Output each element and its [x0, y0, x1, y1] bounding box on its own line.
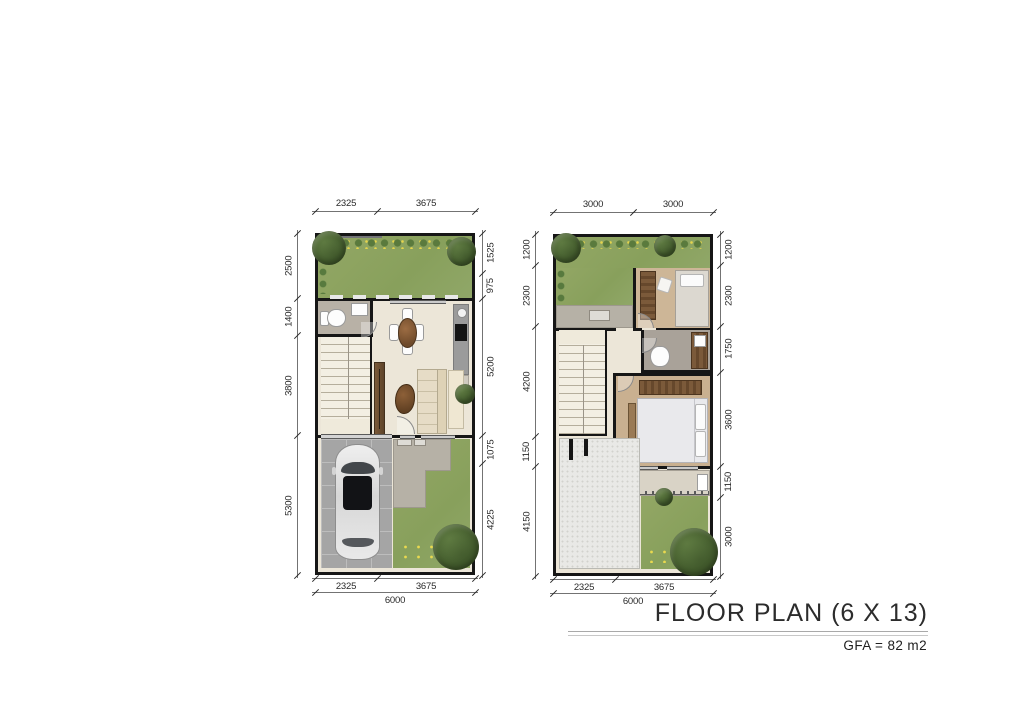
dimension-segment: 2325 [315, 576, 377, 591]
pillow [695, 404, 706, 430]
upper-dims-right: 120023001750360011503000 [716, 234, 732, 576]
step-pad [397, 439, 411, 446]
dimension-label: 975 [486, 278, 496, 293]
dimension-segment: 1750 [716, 326, 732, 372]
dimension-label: 2300 [724, 286, 734, 306]
dimension-label: 1750 [724, 339, 734, 359]
floor-plan-canvas: 23253675 2500140038005300 15259755200107… [0, 0, 1024, 723]
coffee-table [395, 384, 415, 414]
dimension-segment: 4200 [524, 326, 540, 437]
dimension-tick [479, 229, 486, 236]
dimension-label: 3000 [663, 200, 683, 210]
tv-screen-line [379, 369, 380, 429]
stair-rail [583, 345, 584, 434]
garden-hedge [326, 238, 465, 249]
kitchen-sink [457, 308, 467, 318]
dimension-segment: 2325 [315, 199, 377, 214]
dimension-segment: 5200 [478, 299, 494, 436]
pillow [695, 431, 706, 457]
dimension-segment: 1075 [478, 436, 494, 464]
dimension-label: 3675 [416, 199, 436, 209]
dimension-tick [311, 208, 318, 215]
dimension-label: 1525 [486, 243, 496, 263]
stove [455, 324, 466, 340]
tree [551, 233, 581, 263]
toilet [327, 309, 346, 327]
dimension-segment: 3675 [377, 576, 475, 591]
gfa-label: GFA = 82 m2 [568, 638, 928, 653]
car [335, 444, 380, 560]
dimension-label: 3000 [583, 200, 603, 210]
hall-opening [616, 328, 633, 331]
rear-window [390, 300, 445, 304]
wall-stub [584, 439, 588, 456]
tree [447, 237, 476, 266]
dimension-segment: 4150 [524, 467, 540, 576]
cushion [656, 276, 673, 293]
ground-dims-left: 2500140038005300 [286, 233, 302, 575]
stair-landing [321, 419, 370, 435]
dimension-label: 2500 [284, 256, 294, 276]
ground-floor-building [315, 233, 475, 575]
lower-roof-void [559, 438, 641, 569]
dimension-segment: 3800 [286, 336, 302, 436]
car-mirror [332, 467, 336, 475]
dimension-label: 2300 [522, 286, 532, 306]
dimension-label: 1200 [522, 240, 532, 260]
dimension-label: 1150 [724, 472, 734, 492]
patio-door-arc [397, 416, 415, 434]
upper-dims-top: 30003000 [553, 200, 713, 215]
step-pad [414, 439, 426, 446]
shrub [455, 384, 475, 404]
tree [433, 524, 479, 570]
dimension-tick [717, 230, 724, 237]
roof-garden-hedge [561, 239, 706, 249]
dimension-segment: 3000 [553, 200, 633, 215]
dimension-label: 6000 [385, 596, 405, 606]
dimension-label: 5300 [284, 495, 294, 515]
patio-paving-walk [393, 470, 426, 509]
dimension-segment: 1525 [478, 233, 494, 273]
car-sunroof [343, 476, 372, 510]
upper-dims-left: 12002300420011504150 [524, 234, 540, 576]
bathroom-2 [641, 330, 710, 373]
dimension-label: 1200 [724, 240, 734, 260]
dimension-segment: 2500 [286, 233, 302, 299]
dimension-segment: 5300 [286, 436, 302, 575]
wall-stub [569, 439, 573, 460]
dining-table [398, 318, 417, 348]
dimension-label: 4225 [486, 509, 496, 529]
dimension-label: 3600 [724, 409, 734, 429]
single-bed [675, 270, 708, 327]
tree [670, 528, 718, 576]
dimension-segment: 2300 [716, 266, 732, 327]
dimension-tick [532, 230, 539, 237]
dimension-tick [311, 575, 318, 582]
dimension-segment: 3000 [716, 497, 732, 576]
dimension-segment: 1400 [286, 299, 302, 336]
car-rear-window [342, 538, 374, 547]
dimension-tick [311, 589, 318, 596]
dimension-segment: 2300 [524, 266, 540, 327]
wardrobe [639, 380, 701, 396]
toilet [650, 346, 669, 367]
kitchen-counter [453, 304, 469, 375]
dimension-tick [549, 590, 556, 597]
dimension-label: 1075 [486, 440, 496, 460]
dimension-tick [549, 209, 556, 216]
car-mirror [379, 467, 383, 475]
double-bed [637, 398, 708, 463]
dimension-segment: 1150 [716, 467, 732, 497]
patio-paving [393, 439, 452, 471]
dimension-segment: 4225 [478, 464, 494, 575]
tv-console [374, 362, 385, 436]
dimension-label: 1150 [522, 442, 532, 462]
bathroom-vanity [351, 303, 368, 316]
dimension-label: 1400 [284, 307, 294, 327]
dimension-label: 4150 [522, 511, 532, 531]
title-block: FLOOR PLAN (6 X 13) GFA = 82 m2 [568, 599, 928, 653]
ground-dims-top: 23253675 [315, 199, 475, 214]
ground-dims-bottom-total: 6000 [315, 590, 475, 605]
roof-walkway [556, 305, 633, 328]
planter [697, 474, 708, 491]
staircase [321, 337, 372, 434]
sheet-title: FLOOR PLAN (6 X 13) [568, 599, 928, 628]
deck-steps [330, 295, 459, 299]
bathroom-door-arc [361, 322, 377, 338]
dimension-label: 3800 [284, 375, 294, 395]
dimension-segment: 6000 [315, 590, 475, 605]
tree [312, 231, 346, 265]
staircase-upper [559, 330, 607, 436]
roof-garden-shrubs [556, 268, 565, 305]
dimension-segment: 3600 [716, 372, 732, 467]
dimension-segment: 3675 [377, 199, 475, 214]
dimension-segment: 3675 [615, 577, 713, 592]
dimension-tick [294, 229, 301, 236]
dimension-segment: 2325 [553, 577, 615, 592]
step-pad [589, 310, 611, 320]
stair-landing [559, 330, 605, 343]
dimension-label: 4200 [522, 371, 532, 391]
dining-set [389, 308, 424, 355]
shrub [655, 488, 673, 506]
dimension-label: 2325 [336, 199, 356, 209]
sofa [417, 369, 448, 435]
upper-floor-building [553, 234, 713, 576]
shrub [654, 235, 676, 257]
car-windshield [341, 462, 375, 473]
dimension-label: 5200 [486, 357, 496, 377]
upper-dims-bottom: 23253675 [553, 577, 713, 592]
roof-garden [556, 268, 633, 305]
ground-dims-bottom: 23253675 [315, 576, 475, 591]
ground-dims-right: 1525975520010754225 [478, 233, 494, 575]
dimension-segment: 1200 [716, 234, 732, 266]
sink [694, 335, 706, 347]
title-divider [568, 631, 928, 636]
dimension-segment: 3000 [633, 200, 713, 215]
duvet-fold [694, 399, 695, 462]
dimension-tick [549, 576, 556, 583]
pillow [680, 274, 704, 287]
sofa-back-cushions [437, 370, 446, 434]
dimension-label: 3000 [724, 526, 734, 546]
